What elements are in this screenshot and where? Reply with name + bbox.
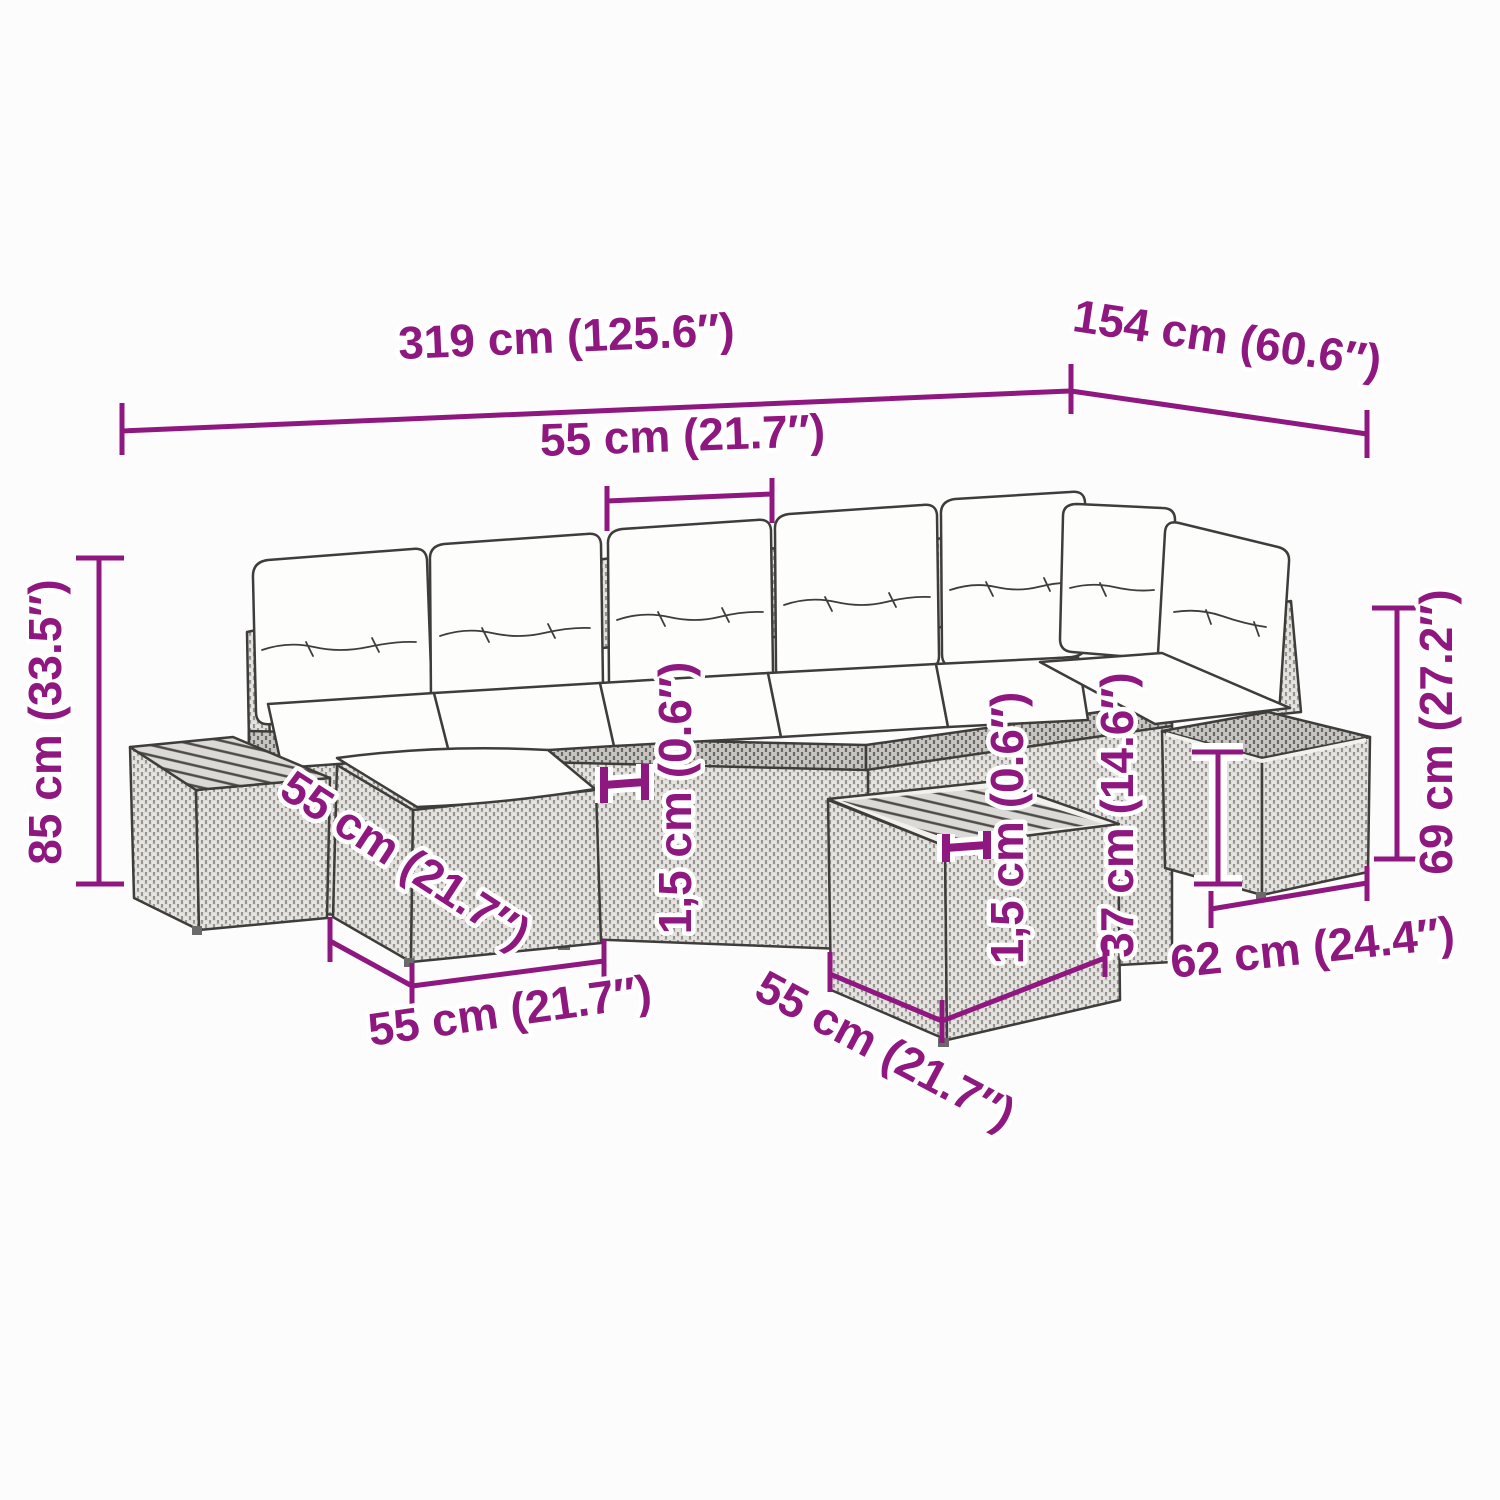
dim-label-total-height: 85 cm (33.5″) [19, 579, 71, 864]
dim-label-table-thickness: 1,5 cm (0.6″) [981, 692, 1033, 965]
right-table-right-face [1262, 737, 1370, 895]
dim-label-table-height: 37 cm (14.6″) [1091, 672, 1143, 957]
product-dimension-diagram: 319 cm (125.6″) 154 cm (60.6″) 55 cm (21… [0, 0, 1500, 1500]
dim-side-table-height: 69 cm (27.2″) [1372, 589, 1462, 874]
diagram-canvas: 319 cm (125.6″) 154 cm (60.6″) 55 cm (21… [0, 0, 1500, 1500]
table-foot [192, 926, 202, 935]
dim-label-back-cushion: 55 cm (21.7″) [539, 404, 826, 466]
dim-back-cushion-width: 55 cm (21.7″) [539, 404, 826, 531]
dim-line-total-height [76, 558, 124, 884]
dim-label-side-table-height: 69 cm (27.2″) [1410, 589, 1462, 874]
dim-label-stool-width: 55 cm (21.7″) [365, 965, 655, 1056]
dim-label-sofa-thickness: 1,5 cm (0.6″) [649, 662, 701, 935]
dim-label-total-width: 319 cm (125.6″) [397, 303, 735, 369]
dim-total-height: 85 cm (33.5″) [19, 558, 124, 884]
back-pillow [1060, 504, 1175, 659]
seat-cushion [768, 664, 948, 737]
back-pillow [775, 505, 939, 682]
dim-label-total-depth: 154 cm (60.6″) [1070, 289, 1385, 387]
right-end-table [1162, 712, 1370, 900]
seat-cushion [434, 683, 614, 756]
dim-total-depth: 154 cm (60.6″) [1070, 289, 1385, 458]
